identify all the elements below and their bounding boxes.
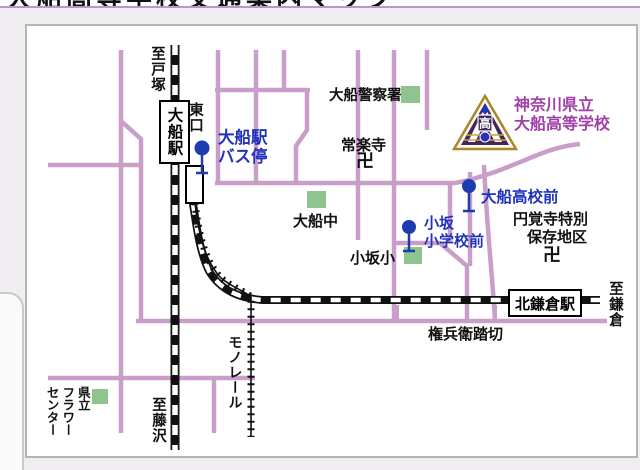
school-name-line1: 神奈川県立 [514,96,594,114]
bus-stop-icon-school [463,180,476,212]
flower-center-col1: 県立 [75,386,91,442]
bus-stop-head [463,180,476,193]
school-bus-stop-label: 大船高校前 [481,189,559,206]
emblem-blue-gem [480,132,490,142]
road [121,121,141,322]
flower-center-square [92,389,108,404]
ofuna-bus-stop-label-line1: 大船駅 [218,129,268,147]
school-name-line2: 大船高等学校 [514,115,610,133]
monorail-label: モノレール [226,335,241,410]
bus-stop-head [195,141,209,155]
road [215,144,580,183]
direction-to-fujisawa: 至藤沢 [149,397,165,444]
kosaka-bus-stop-label-line2: 小学校前 [424,233,484,250]
direction-to-totsuka: 至戸塚 [148,46,164,93]
engakuji-district-label-line1: 円覚寺特別 [513,211,588,228]
bus-stop-icon-kosaka [403,221,416,252]
flower-center-col3: センター [44,386,60,442]
school-emblem: 高 [452,94,518,152]
direction-to-kamakura: 至鎌倉 [606,281,622,328]
monorail-station-box [186,166,203,203]
flower-center-col2: フラワー [60,386,76,442]
road [296,92,307,183]
police-station-label: 大船警察署 [329,89,402,105]
crossing-stubs [397,305,495,319]
flower-center-label: 県立 フラワー センター [44,386,91,442]
police-square [401,86,420,103]
junior-high-square [307,191,326,208]
emblem-character: 高 [479,116,491,131]
ofuna-junior-high-label: 大船中 [293,213,338,230]
screenshot-root: 大船高等学校交通案内マップ [0,0,640,470]
kosaka-bus-stop-label-line1: 小坂 [424,215,454,232]
temple-manji-icon: 卍 [356,152,374,172]
bus-stop-head [403,221,416,234]
ofuna-bus-stop-label-line2: バス停 [218,148,268,166]
kosaka-elementary-label: 小坂小 [350,250,395,267]
ofuna-station-label: 大船駅 [164,107,186,157]
engakuji-district-label-line2: 保存地区 [527,229,587,246]
kita-kamakura-station-box: 北鎌倉駅 [508,289,582,317]
gonbei-crossing-label: 権兵衛踏切 [428,326,503,343]
kita-kamakura-station-label: 北鎌倉駅 [515,293,575,314]
temple-manji-icon-2: 卍 [543,246,561,266]
east-exit-label: 東口 [186,102,202,133]
elementary-square [404,247,422,264]
bus-stop-pole [463,192,475,211]
